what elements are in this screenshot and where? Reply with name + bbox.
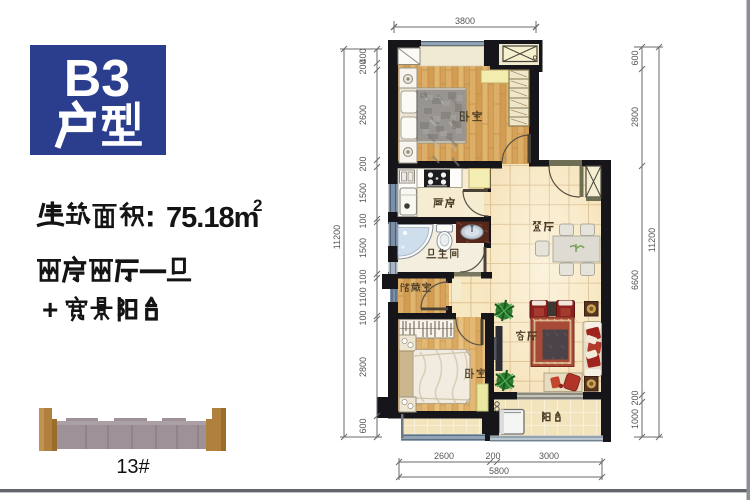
svg-text:1000: 1000 — [630, 409, 640, 429]
svg-text:2600: 2600 — [358, 105, 368, 125]
svg-text:200: 200 — [485, 451, 500, 461]
svg-text:100: 100 — [358, 269, 368, 284]
svg-text:1500: 1500 — [358, 183, 368, 203]
svg-text:600: 600 — [358, 418, 368, 433]
svg-text:5800: 5800 — [489, 466, 509, 476]
svg-text:11200: 11200 — [647, 228, 657, 252]
svg-text:1500: 1500 — [358, 238, 368, 258]
svg-text:75.18m: 75.18m — [166, 202, 258, 234]
svg-text:1100: 1100 — [358, 287, 368, 306]
svg-text:200: 200 — [358, 59, 368, 74]
svg-text:2600: 2600 — [434, 451, 454, 461]
svg-text:B3: B3 — [64, 50, 130, 108]
svg-text:100: 100 — [358, 213, 368, 228]
svg-text:11200: 11200 — [332, 225, 342, 249]
svg-text:100: 100 — [358, 310, 368, 325]
svg-text:2: 2 — [253, 196, 262, 215]
svg-text:200: 200 — [358, 156, 368, 171]
svg-text:2800: 2800 — [630, 107, 640, 127]
svg-text:200: 200 — [630, 390, 640, 405]
svg-text:2800: 2800 — [358, 357, 368, 377]
svg-text:3000: 3000 — [539, 451, 559, 461]
svg-text:+: + — [42, 294, 58, 325]
svg-text:13#: 13# — [116, 456, 150, 478]
svg-text:600: 600 — [630, 50, 640, 65]
svg-text:3800: 3800 — [455, 16, 475, 26]
svg-text:6600: 6600 — [630, 270, 640, 290]
